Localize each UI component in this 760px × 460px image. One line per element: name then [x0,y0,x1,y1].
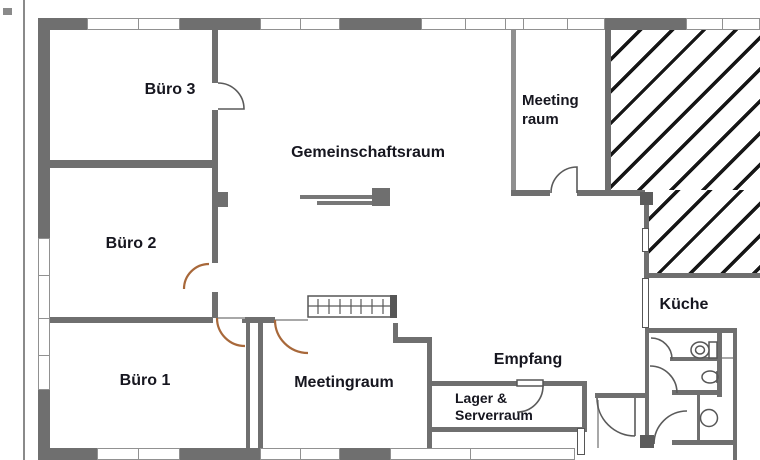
door-arc-wc-stall2 [650,366,677,393]
room-label-kueche: Küche [660,295,709,314]
room-label-lager-serverraum: Lager & Serverraum [455,390,533,423]
room-label-lager-line1: Lager & [455,390,533,407]
toilet-icon [691,342,717,358]
room-label-meeting-raum-line2: raum [522,111,579,130]
room-label-meetingraum: Meetingraum [294,373,394,392]
room-label-buero2: Büro 2 [106,234,157,253]
door-arc-buero2 [184,264,209,289]
door-arc-wc-stall1 [651,338,672,359]
radiator-symbol [308,295,397,318]
door-leaf-lager [517,380,543,386]
urinal-icon [702,371,718,383]
door-arc-entry [597,398,635,436]
door-arc-buero3 [218,83,244,109]
sink-icon [701,410,718,427]
room-label-buero3: Büro 3 [145,80,196,99]
room-label-lager-line2: Serverraum [455,407,533,424]
door-arc-wc-entry [654,411,687,444]
room-label-meeting-raum: Meeting raum [522,92,579,130]
door-arc-meeting-raum [551,167,577,193]
room-label-meeting-raum-line1: Meeting [522,92,579,111]
floor-plan: Büro 3 Büro 2 Büro 1 Gemeinschaftsraum M… [0,0,760,460]
room-label-gemeinschaftsraum: Gemeinschaftsraum [291,143,445,162]
room-label-empfang: Empfang [494,350,562,369]
door-arc-meetingraum [275,320,308,353]
room-label-buero1: Büro 1 [120,371,171,390]
door-arc-buero1 [217,318,245,346]
